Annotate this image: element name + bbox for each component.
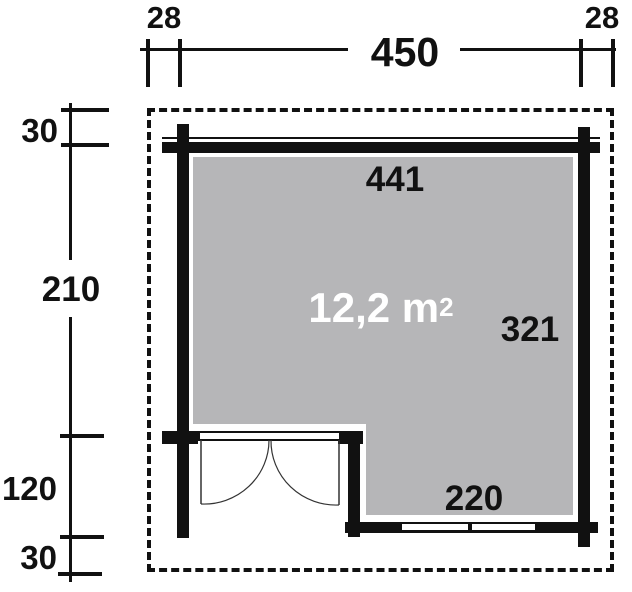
left-wall: [177, 124, 189, 538]
window-pane-right: [472, 524, 535, 530]
door-swing-arc-left: [201, 440, 269, 504]
top-dimension-line-left: [140, 48, 348, 51]
left-dimension-line-lower: [69, 317, 72, 582]
label-window-wall: 220: [424, 481, 524, 516]
dimension-label-overhang-bottom: 30: [0, 541, 57, 574]
dimension-label-total-width: 450: [353, 32, 457, 73]
left-dimension-tick-2: [61, 143, 109, 147]
left-dimension-tick-3: [60, 434, 104, 438]
double-door-swing: [190, 438, 350, 508]
dimension-label-door-section: 120: [0, 472, 57, 505]
dimension-label-overhang-right: 28: [578, 2, 626, 33]
floor-plan-diagram: 28 450 28 30 210 120 30 441 321 220 12,2…: [0, 0, 632, 592]
top-dimension-tick-1: [146, 39, 150, 87]
left-dimension-tick-5: [58, 572, 102, 576]
top-dimension-tick-3: [579, 39, 583, 87]
label-interior-width: 441: [345, 162, 445, 197]
left-dimension-tick-4: [60, 535, 104, 539]
top-wall-edge-line: [162, 137, 600, 139]
door-swing-arc-right: [271, 440, 339, 505]
dimension-label-overhang-top: 30: [0, 114, 58, 147]
floor-area-value: 12,2 m: [308, 284, 439, 331]
left-dimension-line-upper: [69, 103, 72, 260]
dimension-label-overhang-left: 28: [140, 2, 188, 33]
dimension-label-side-depth: 210: [21, 272, 121, 307]
label-floor-area: 12,2 m2: [261, 287, 501, 329]
top-dimension-line-right: [460, 48, 616, 51]
left-dimension-tick-1: [61, 108, 109, 112]
top-dimension-tick-4: [611, 39, 615, 87]
top-wall: [162, 142, 600, 153]
top-dimension-tick-2: [178, 39, 182, 87]
floor-area-superscript: 2: [439, 292, 453, 322]
window-pane-left: [402, 524, 468, 530]
